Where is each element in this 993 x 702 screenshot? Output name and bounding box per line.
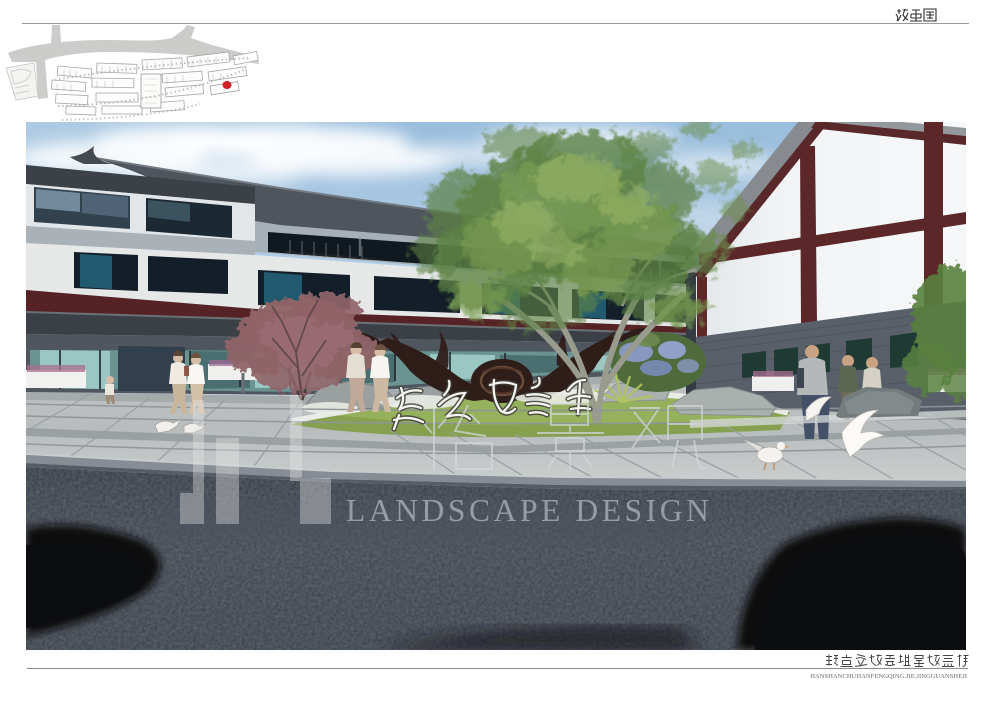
svg-text:HANSHANCHUHANFENGQING.JIE.JING: HANSHANCHUHANFENGQING.JIE.JINGGUANSHEJI	[810, 673, 967, 680]
svg-text:LANDSCAPE DESIGN: LANDSCAPE DESIGN	[346, 493, 713, 528]
